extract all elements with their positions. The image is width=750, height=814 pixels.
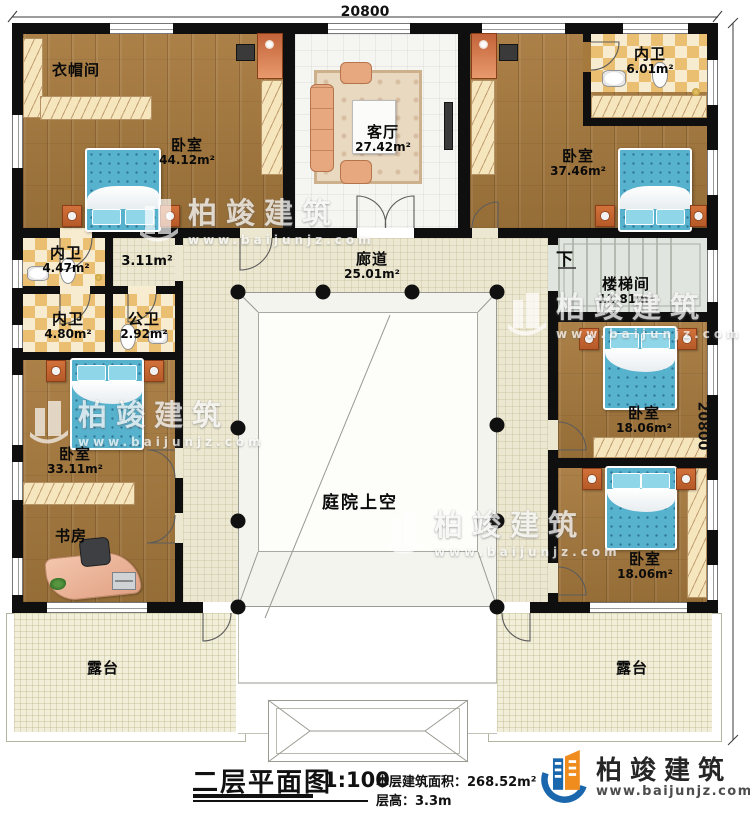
room-label-ensuite1: 内卫 6.01m²: [626, 46, 673, 76]
bed-bedroomD: [603, 326, 677, 410]
window-right-2: [707, 150, 718, 195]
tv-living: [444, 102, 453, 150]
room-label-bedroom2: 卧室 37.46m²: [550, 148, 606, 178]
wardrobe-bedroom2-top: [591, 95, 707, 118]
window-left-5: [12, 462, 23, 500]
wall-bath-row-divider: [23, 286, 183, 294]
tv-bedroom2: [499, 44, 518, 61]
pillow: [108, 365, 137, 381]
title-underline-thin: [193, 800, 368, 802]
door-gap-study: [175, 513, 183, 543]
floor-height-note: 层高：3.3m: [376, 790, 452, 809]
window-top-1: [110, 23, 173, 34]
pillow: [125, 209, 154, 225]
nightstand: [690, 205, 707, 227]
window-left-6: [12, 558, 23, 595]
wall-living-bedroom2: [458, 34, 470, 238]
door-gap-bedroomD: [548, 420, 558, 450]
bed-bedroomE: [605, 466, 677, 550]
wall-stair-bedroomD: [548, 312, 707, 322]
tv-master: [236, 44, 255, 61]
armchair: [340, 160, 372, 184]
window-top-4: [623, 23, 688, 34]
door-gap-terrace-left: [203, 602, 233, 613]
terrace-left: [14, 613, 236, 732]
nightstand: [579, 328, 599, 350]
entrance-canopy-inner: [276, 708, 460, 754]
light-fixture: [95, 274, 102, 281]
bed-bedroomC: [70, 358, 144, 450]
wardrobe-bedroom2-left: [471, 80, 495, 175]
pillow: [625, 209, 654, 225]
nightstand: [582, 468, 602, 490]
bed-sheet: [607, 489, 675, 512]
armchair: [340, 62, 372, 84]
stair-landing: [674, 238, 707, 312]
stair-direction-label: 下: [556, 245, 573, 270]
door-gap-bath3: [60, 286, 90, 294]
bed-master: [85, 148, 161, 232]
pillow: [92, 209, 121, 225]
nightstand: [677, 328, 697, 350]
nightstand: [676, 468, 696, 490]
bed-bedroom2: [618, 148, 692, 232]
wardrobe-master-top: [40, 96, 152, 120]
sofa: [310, 84, 334, 172]
door-gap-hallway: [175, 245, 183, 281]
pillow: [77, 365, 106, 381]
window-left-3: [12, 325, 23, 348]
bed-sheet: [620, 186, 690, 209]
dimension-right: 20800: [694, 402, 710, 451]
pillow: [610, 333, 639, 349]
nightstand: [46, 360, 66, 382]
entry-below: [238, 607, 497, 683]
room-label-ensuite3: 内卫 4.80m²: [44, 311, 91, 341]
room-label-corridor: 廊道 25.01m²: [344, 251, 400, 281]
room-label-bedroomC: 卧室 33.11m²: [47, 446, 103, 476]
door-gap-ensuite1: [583, 42, 591, 72]
room-label-bedroomE: 卧室 18.06m²: [617, 551, 673, 581]
bed-sheet: [72, 381, 142, 404]
courtyard-inner: [258, 312, 478, 552]
window-right-6: [707, 565, 718, 600]
room-label-bedroomD: 卧室 18.06m²: [616, 405, 672, 435]
wall-bath3-pub: [105, 294, 113, 352]
nightstand: [62, 205, 82, 227]
room-label-terrace-right: 露台: [616, 660, 648, 677]
light-fixture: [692, 88, 700, 96]
terrace-right: [497, 613, 712, 732]
room-label-study: 书房: [55, 528, 87, 545]
wardrobe-master-right: [261, 80, 283, 175]
pillow: [656, 209, 685, 225]
wall-bath2-hall: [105, 238, 113, 286]
room-label-cloakroom: 衣帽间: [52, 62, 100, 79]
wardrobe-bedroomD: [593, 437, 707, 458]
nightstand: [160, 205, 180, 227]
wall-below-living-r: [414, 228, 458, 238]
tv-cabinet: [257, 33, 283, 79]
door-gap-bedroomE: [548, 563, 558, 593]
room-label-terrace-left: 露台: [87, 660, 119, 677]
window-left-2: [12, 260, 23, 288]
laptop: [112, 572, 136, 590]
floor-area-note: 本层建筑面积：268.52m²: [376, 771, 536, 790]
bed-sheet: [87, 186, 159, 209]
door-gap-public-bath: [128, 286, 156, 294]
window-left-1: [12, 115, 23, 168]
room-label-ensuite2: 内卫 4.47m²: [42, 245, 89, 275]
dimension-top: 20800: [341, 4, 390, 20]
door-gap-terrace-right: [500, 602, 530, 613]
wall-ensuite1-bottom: [583, 118, 707, 126]
window-right-5: [707, 480, 718, 530]
wall-below-living-l: [295, 228, 357, 238]
pillow: [641, 473, 670, 489]
company-website: www.baijunjz.com: [596, 784, 750, 799]
bed-sheet: [605, 349, 675, 372]
door-gap-master: [240, 228, 272, 238]
window-top-2: [328, 23, 410, 34]
title-underline-thick: [193, 794, 313, 798]
door-gap-bedroomC: [175, 448, 183, 478]
room-label-stairwell: 楼梯间 11.81m²: [598, 276, 654, 306]
floor-plan: 衣帽间 卧室 44.12m² 客厅 27.42m² 内卫 6.01m² 卧室 3…: [0, 0, 750, 814]
wall-masterbr-living: [283, 34, 295, 238]
window-right-3: [707, 250, 718, 302]
room-label-public-bath: 公卫 2.92m²: [120, 311, 167, 341]
window-bottom-study: [47, 602, 147, 613]
tv-cabinet: [471, 33, 497, 79]
window-right-4: [707, 345, 718, 395]
pillow: [641, 333, 670, 349]
window-bottom-bedroomE: [590, 602, 687, 613]
company-logo-icon: [540, 746, 590, 804]
room-label-living: 客厅 27.42m²: [355, 124, 411, 154]
wardrobe-bedroom-left: [23, 482, 135, 505]
room-label-hallway: 3.11m²: [121, 255, 172, 270]
nightstand: [144, 360, 164, 382]
window-left-4: [12, 375, 23, 445]
room-label-bedroom-master: 卧室 44.12m²: [159, 137, 215, 167]
door-gap-bedroom2: [472, 228, 498, 238]
sink-ensuite1: [602, 70, 626, 87]
company-name: 柏竣建筑: [596, 750, 732, 787]
window-right-1: [707, 60, 718, 105]
room-label-courtyard: 庭院上空: [322, 494, 398, 513]
nightstand: [595, 205, 615, 227]
wall-left-block-right: [175, 238, 183, 602]
pillow: [612, 473, 641, 489]
